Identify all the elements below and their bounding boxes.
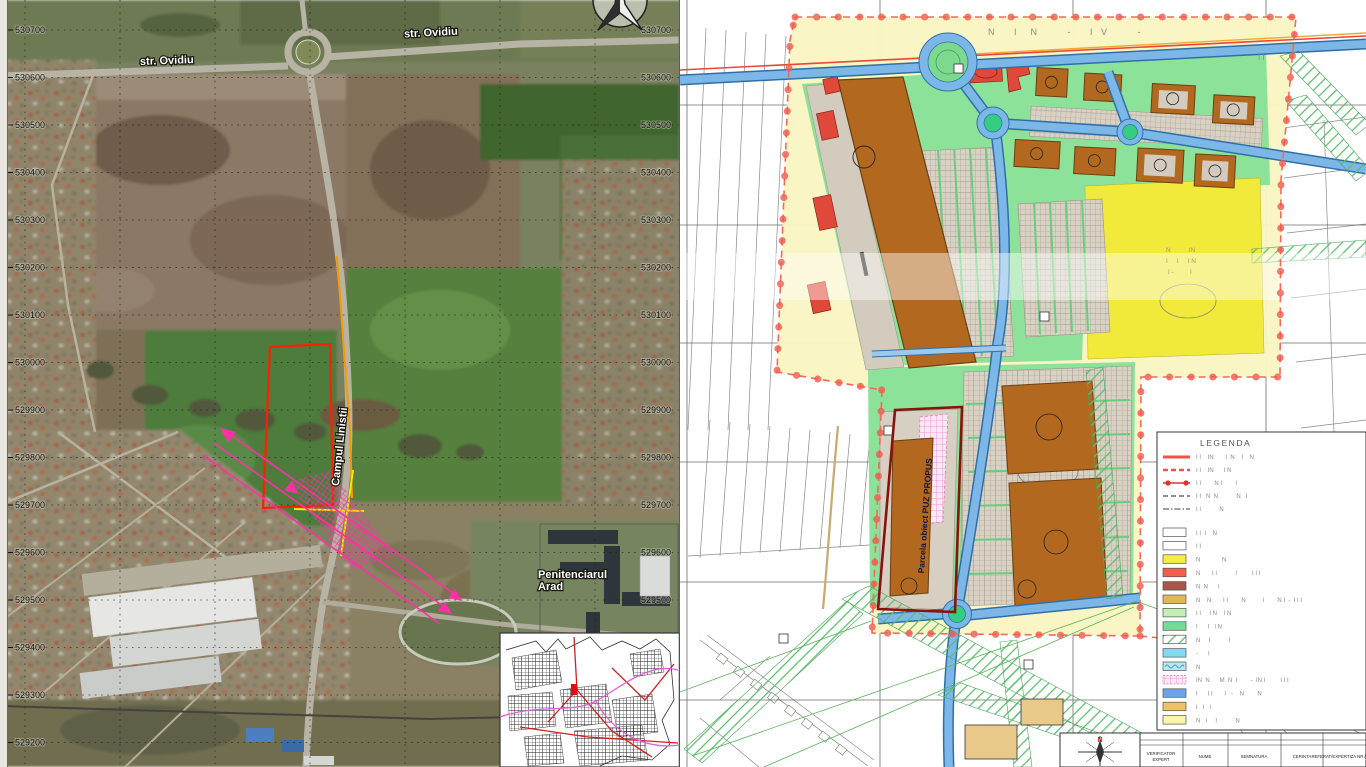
coordinate-label: 530200 [641,263,671,273]
legend-swatch [1163,608,1186,617]
coordinate-label: 530300 [15,215,45,225]
coordinate-label: 529600 [15,548,45,558]
street-label-ovidiu-west: str. Ovidiu [140,54,194,68]
legend-swatch [1163,555,1186,564]
legend-area-label: I I I N I N [1196,611,1231,617]
map-frame [0,0,7,767]
poi-label-arad: Arad [538,581,563,593]
legend-swatch [1163,675,1186,684]
coordinate-label: 530200 [15,263,45,273]
coordinate-label: 530000 [641,358,671,368]
coordinate-label: 529700 [641,500,671,510]
coordinate-label: 530000 [15,358,45,368]
legend-swatch [1163,649,1186,658]
legend-area-label: N N I I N I N I - I I I [1196,598,1302,604]
top-annotation: N I N - I V - [988,27,1144,37]
legend-area-label: I I [1196,544,1201,550]
legend-line-symbol-dot [1183,480,1188,485]
titleblock-col-semnatura: SEMNATURA [1241,754,1268,759]
compass-north-label: N [1097,737,1102,744]
coordinate-label: 529400 [15,643,45,653]
titleblock-col-verificator: VERIFICATOR [1147,751,1176,756]
legend-swatch [1163,622,1186,631]
coordinate-label: 529500 [15,595,45,605]
coordinate-label: 529500 [641,595,671,605]
legend-swatch [1163,635,1186,644]
legend-line-symbol-dot [1165,480,1170,485]
coordinate-label: 529300 [15,690,45,700]
legend-swatch [1163,662,1186,671]
legend-area-label: N N [1196,558,1226,564]
coordinate-label: 530400 [641,168,671,178]
coordinate-label: 529800 [641,453,671,463]
coordinate-label: 529800 [15,453,45,463]
legend-swatch [1163,528,1186,537]
legend-area-label: I I I N [1196,531,1217,537]
yellow-zone-text-2: I I I N [1166,258,1196,265]
coordinate-label: 530700 [15,25,45,35]
legend-swatch [1163,595,1186,604]
coordinate-label: 530700 [641,25,671,35]
legend-area-label: I I I I - N N [1196,692,1262,698]
legend-swatch [1163,716,1186,725]
side-annotation: I I [1258,53,1265,62]
legend-title: LEGENDA [1200,438,1251,448]
north-arrow-icon [593,0,647,30]
legend-area-label: - I [1196,651,1210,657]
legend-area-label: I I I N [1196,625,1222,631]
legend-area-label: N I I I I I I [1196,571,1261,577]
legend-line-label: I I N I I [1196,481,1237,487]
titleblock-col-expert: EXPERT [1152,757,1169,762]
legend-line-label: I I IN I N [1196,468,1231,474]
legend-swatch [1163,582,1186,591]
legend-area-label: IN N M N I - IN I I I I [1196,678,1289,684]
satellite-map-panel[interactable]: 5307005307005306005306005305005305005304… [0,0,680,767]
coordinate-label: 530100 [641,310,671,320]
coordinate-label: 529700 [15,500,45,510]
inset-site-marker [571,684,577,695]
legend-line-label: I I IN I N I N [1196,455,1254,461]
coordinate-label: 530500 [15,120,45,130]
legend-swatch [1163,568,1186,577]
legend-area-label: N [1196,665,1200,671]
titleblock-col-cerinta: CERINTA [1293,754,1312,759]
coordinate-label: 530400 [15,168,45,178]
legend-area-label: N N I [1196,584,1220,590]
coordinate-label: 529900 [15,405,45,415]
poi-label-penitenciarul: Penitenciarul [538,569,607,581]
legend-line-label: I I N N N I [1196,494,1248,500]
coordinate-label: 529200 [15,738,45,748]
title-block: N VERIFICATOR EXPERT NUME SEMNATURA CERI… [1060,733,1366,767]
coordinate-label: 529600 [641,548,671,558]
legend-area-label: I I I [1196,705,1211,711]
coordinate-label: 529900 [641,405,671,415]
legend-area-label: N I I [1196,638,1231,644]
plan-document-page: 5307005307005306005306005305005305005304… [0,0,1366,767]
legend-swatch [1163,541,1186,550]
inset-city-map[interactable] [500,633,680,767]
coordinate-label: 530600 [15,73,45,83]
coordinate-label: 530100 [15,310,45,320]
legend-swatch [1163,689,1186,698]
titleblock-col-referat: REFERAT/EXPERTIZA NR./DATA [1311,754,1366,759]
coordinate-label: 530500 [641,120,671,130]
zoning-plan-panel[interactable]: Parcela obiect PUZ PROPUS N I N - I V - … [680,0,1366,767]
legend-area-label: N I I N [1196,718,1240,724]
coordinate-label: 530600 [641,73,671,83]
coordinate-label: 530300 [641,215,671,225]
yellow-zone-text-3: I - I [1168,269,1192,276]
legend-swatch [1163,702,1186,711]
titleblock-col-nume: NUME [1199,754,1212,759]
legend: LEGENDA I I IN I N I NI I IN I NI I N I … [1157,432,1366,730]
legend-line-label: I I N [1196,507,1224,513]
yellow-zone-text-1: N IN [1166,247,1196,254]
